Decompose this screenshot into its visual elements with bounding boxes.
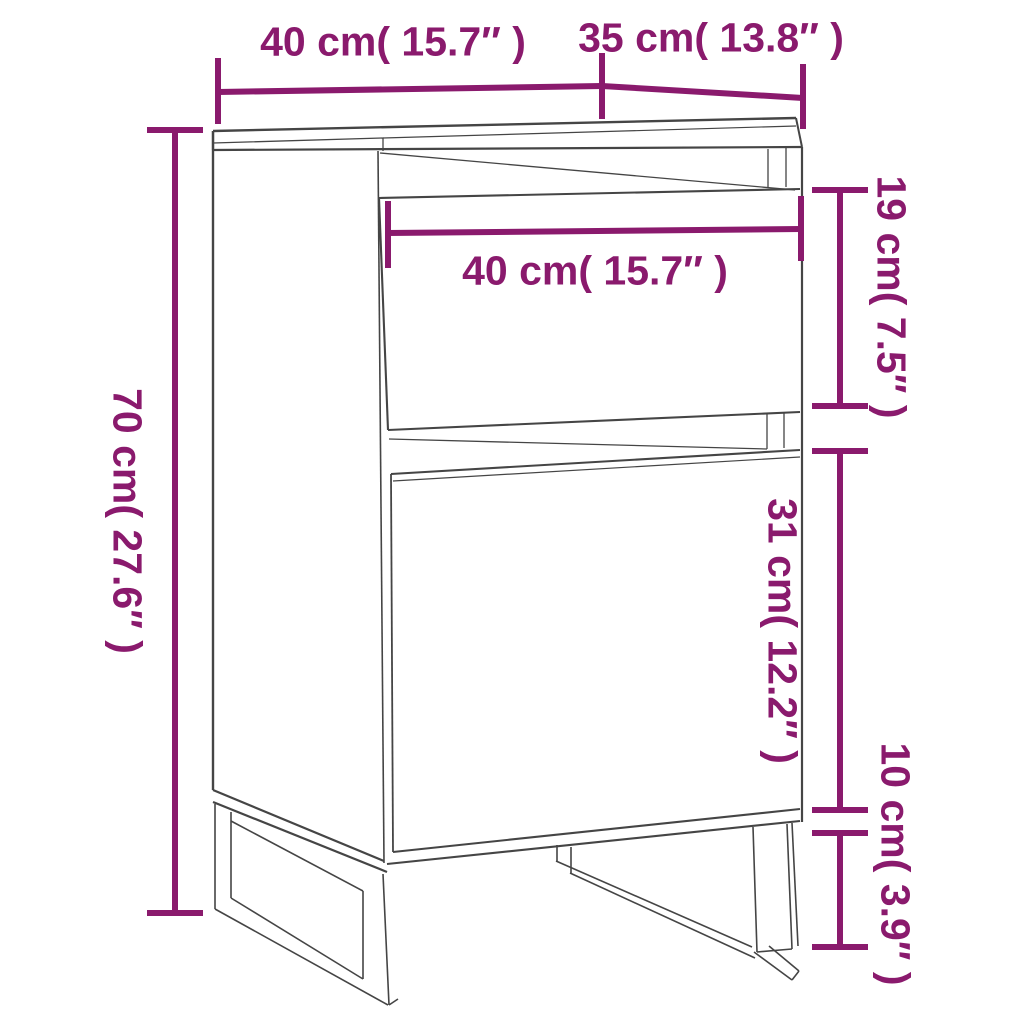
- left-leg: [215, 804, 398, 1005]
- label-drawer-height: 19 cm( 7.5″ ): [871, 176, 912, 419]
- label-overall-height: 70 cm( 27.6″ ): [107, 388, 148, 654]
- drawer-front: [379, 189, 800, 430]
- dim-door-height-line: [812, 451, 868, 810]
- door-front: [391, 450, 800, 852]
- top-rail: [380, 148, 795, 190]
- diagram-canvas: [0, 0, 1024, 1024]
- label-top-depth: 35 cm( 13.8″ ): [578, 18, 844, 59]
- label-drawer-width: 40 cm( 15.7″ ): [462, 251, 728, 292]
- dim-overall-height-line: [147, 130, 203, 913]
- cabinet-side-panel: [213, 131, 387, 872]
- label-leg-height: 10 cm( 3.9″ ): [875, 743, 916, 986]
- label-door-height: 31 cm( 12.2″ ): [762, 498, 803, 764]
- dimension-diagram: 40 cm( 15.7″ ) 35 cm( 13.8″ ) 40 cm( 15.…: [0, 0, 1024, 1024]
- bottom-panel-edge: [387, 821, 800, 864]
- middle-rail: [389, 412, 784, 449]
- right-leg: [556, 823, 799, 980]
- dim-leg-height-line: [812, 833, 868, 947]
- dim-drawer-height-line: [812, 190, 868, 406]
- cabinet-top-panel: [213, 118, 802, 151]
- label-top-width: 40 cm( 15.7″ ): [260, 22, 526, 63]
